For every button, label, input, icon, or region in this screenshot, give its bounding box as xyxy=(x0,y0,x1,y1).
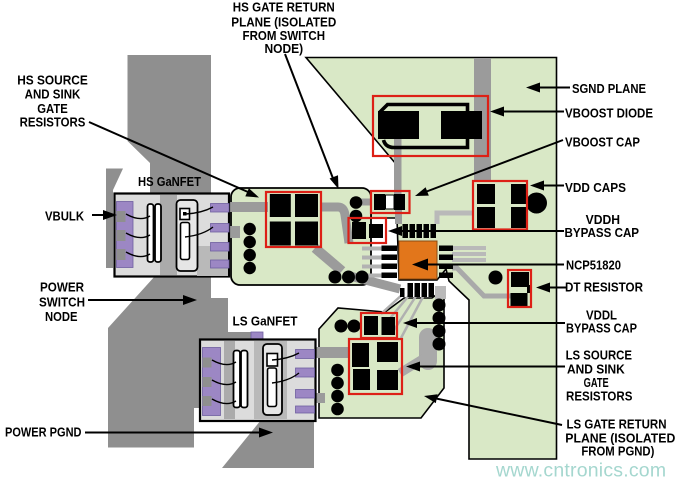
svg-text:NODE): NODE) xyxy=(264,41,303,56)
svg-text:BYPASS CAP: BYPASS CAP xyxy=(566,321,637,336)
svg-text:VBOOST CAP: VBOOST CAP xyxy=(565,135,640,150)
svg-text:www.cntronics.com: www.cntronics.com xyxy=(495,460,666,482)
svg-text:VDD CAPS: VDD CAPS xyxy=(565,180,626,195)
svg-text:LS GaNFET: LS GaNFET xyxy=(233,314,298,329)
svg-text:POWER PGND: POWER PGND xyxy=(5,424,82,439)
svg-text:HS GaNFET: HS GaNFET xyxy=(138,174,201,189)
svg-text:LS GATE RETURN: LS GATE RETURN xyxy=(567,416,667,431)
svg-text:RESISTORS: RESISTORS xyxy=(20,115,86,130)
svg-text:VBOOST DIODE: VBOOST DIODE xyxy=(565,106,653,121)
svg-text:NODE: NODE xyxy=(45,309,78,324)
svg-text:POWER: POWER xyxy=(40,280,85,295)
svg-text:NCP51820: NCP51820 xyxy=(566,257,621,272)
svg-text:SWITCH: SWITCH xyxy=(39,295,85,310)
svg-text:BYPASS CAP: BYPASS CAP xyxy=(565,225,640,240)
svg-text:DT RESISTOR: DT RESISTOR xyxy=(565,279,644,294)
svg-text:RESISTORS: RESISTORS xyxy=(566,388,633,403)
svg-text:LS SOURCE: LS SOURCE xyxy=(566,348,633,363)
svg-text:VBULK: VBULK xyxy=(45,209,85,224)
svg-text:FROM PGND): FROM PGND) xyxy=(581,444,654,459)
svg-text:SGND PLANE: SGND PLANE xyxy=(572,81,646,96)
svg-text:AND SINK: AND SINK xyxy=(25,86,81,101)
svg-text:HS SOURCE: HS SOURCE xyxy=(17,72,88,87)
svg-text:HS GATE RETURN: HS GATE RETURN xyxy=(233,0,335,14)
